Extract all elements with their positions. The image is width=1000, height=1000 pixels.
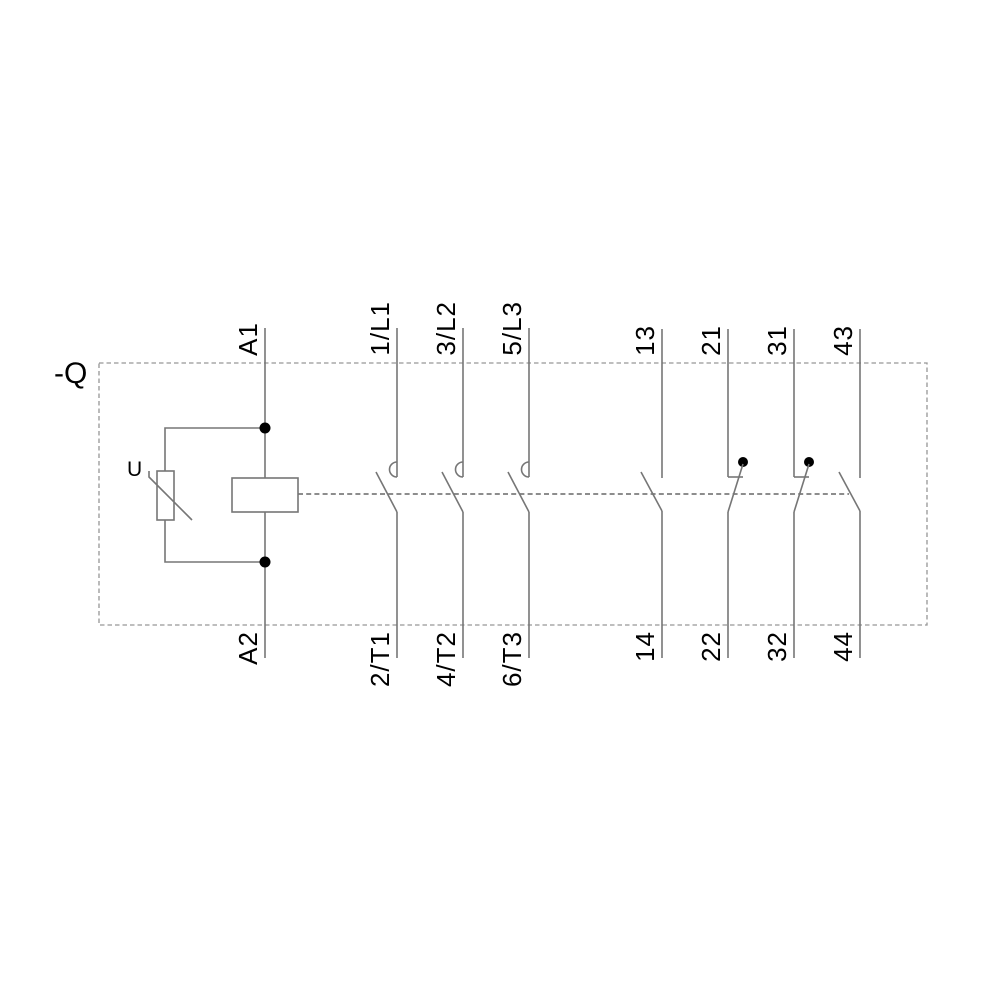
- terminal-label-32: 32: [764, 631, 791, 662]
- terminal-label-4t2: 4/T2: [433, 631, 460, 687]
- terminal-label-6t3: 6/T3: [499, 631, 526, 687]
- moving-contact-line: [376, 472, 397, 512]
- moving-contact-line: [728, 464, 743, 512]
- terminal-label-13: 13: [632, 325, 659, 356]
- moving-contact-line: [508, 472, 529, 512]
- terminal-label-44: 44: [830, 631, 857, 662]
- terminal-label-1l1: 1/L1: [367, 301, 394, 356]
- junction-dot-top: [260, 423, 271, 434]
- terminal-label-43: 43: [830, 325, 857, 356]
- main-contact-arc: [456, 462, 463, 477]
- coil-symbol: [232, 478, 298, 512]
- main-contact-pole-2: [442, 328, 463, 658]
- terminal-label-2t1: 2/T1: [367, 631, 394, 687]
- varistor-symbol: [157, 471, 174, 520]
- moving-contact-line: [839, 472, 860, 511]
- main-contact-arc: [390, 462, 398, 477]
- terminal-label-3l2: 3/L2: [433, 301, 460, 356]
- main-contact-pole-3: [508, 328, 529, 658]
- terminal-label-21: 21: [698, 325, 725, 356]
- moving-contact-line: [442, 472, 463, 512]
- device-designation-label: -Q: [54, 359, 87, 389]
- terminal-label-22: 22: [698, 631, 725, 662]
- main-contact-arc: [522, 462, 529, 477]
- main-contact-pole-1: [376, 328, 397, 658]
- terminal-label-a2: A2: [235, 631, 262, 665]
- terminal-label-31: 31: [764, 325, 791, 356]
- terminal-label-14: 14: [632, 631, 659, 662]
- varistor-loop-lower: [165, 520, 265, 562]
- terminal-label-5l3: 5/L3: [499, 301, 526, 356]
- varistor-label: U: [127, 459, 142, 480]
- varistor-loop-upper: [165, 428, 265, 471]
- coil-branch: [149, 328, 298, 658]
- contactor-schematic: -Q U A1 1/L1 3/L2 5/L3 13 21 31 43 A2 2/…: [0, 0, 1000, 1000]
- junction-dot-bottom: [260, 557, 271, 568]
- terminal-label-a1: A1: [235, 322, 262, 356]
- moving-contact-line: [641, 472, 662, 511]
- moving-contact-line: [794, 464, 809, 512]
- schematic-linework: [0, 0, 1000, 1000]
